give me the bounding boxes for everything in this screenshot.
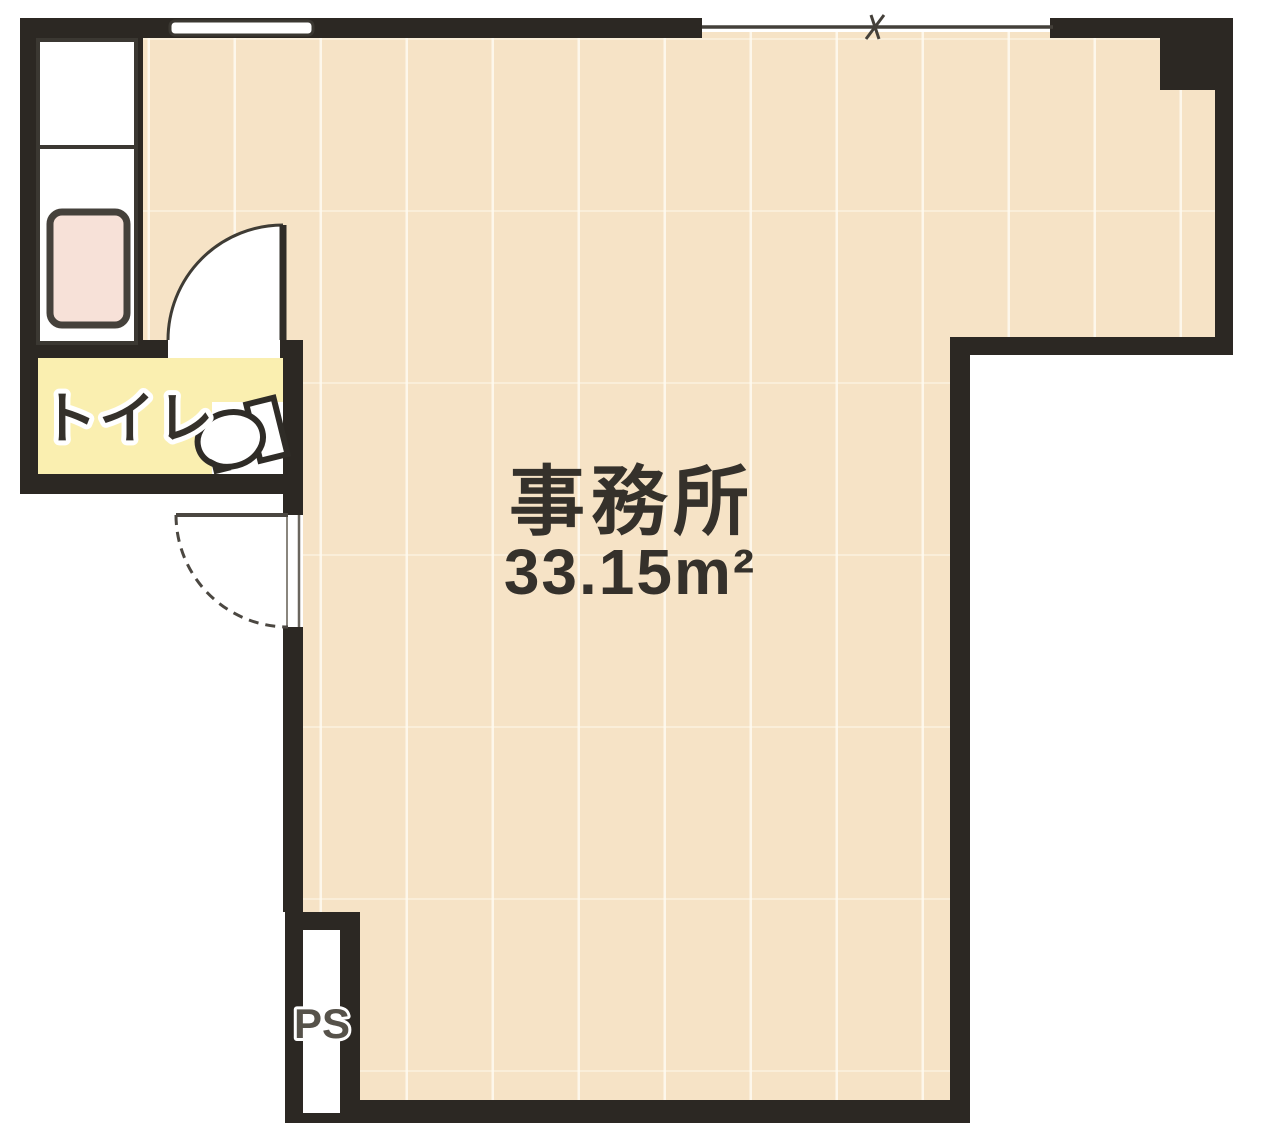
toilet-label: トイレ	[41, 387, 215, 450]
wall-segment	[950, 337, 970, 1123]
floor-plan: PS トイレ 事務所 33.15m²	[0, 0, 1280, 1144]
wall-segment	[20, 18, 38, 494]
toilet-room: トイレ	[38, 358, 288, 477]
sink-icon	[50, 212, 127, 325]
entrance-door-opening	[283, 515, 303, 627]
toilet-door-opening	[168, 340, 280, 358]
window	[170, 21, 313, 35]
room-area-label: 33.15m²	[504, 536, 756, 608]
wall-segment	[285, 1100, 970, 1123]
ps-label: PS	[294, 1000, 350, 1047]
floor-plan-page: PS トイレ 事務所 33.15m²	[0, 0, 1280, 1144]
entrance-door-swing	[176, 515, 288, 627]
kitchen-unit	[38, 40, 136, 343]
entrance-door	[176, 515, 288, 627]
room-name-label: 事務所	[509, 460, 755, 545]
wall-segment	[22, 18, 702, 38]
wall-segment	[20, 474, 303, 494]
wall-segment	[1215, 18, 1233, 355]
wall-segment	[950, 337, 1233, 355]
